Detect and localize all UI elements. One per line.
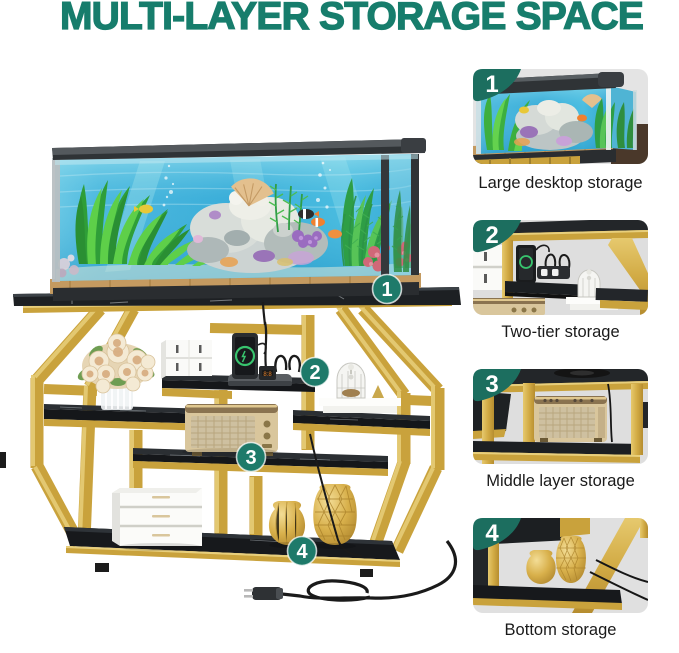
svg-text:4: 4 [485,520,499,547]
svg-text:2: 2 [309,362,320,384]
svg-text:2: 2 [485,222,498,249]
svg-text:3: 3 [245,447,256,469]
svg-text:4: 4 [296,541,308,563]
svg-text:3: 3 [485,371,498,398]
svg-text:1: 1 [381,279,392,301]
svg-text:1: 1 [485,71,498,98]
svg-text:8:8: 8:8 [263,372,272,378]
